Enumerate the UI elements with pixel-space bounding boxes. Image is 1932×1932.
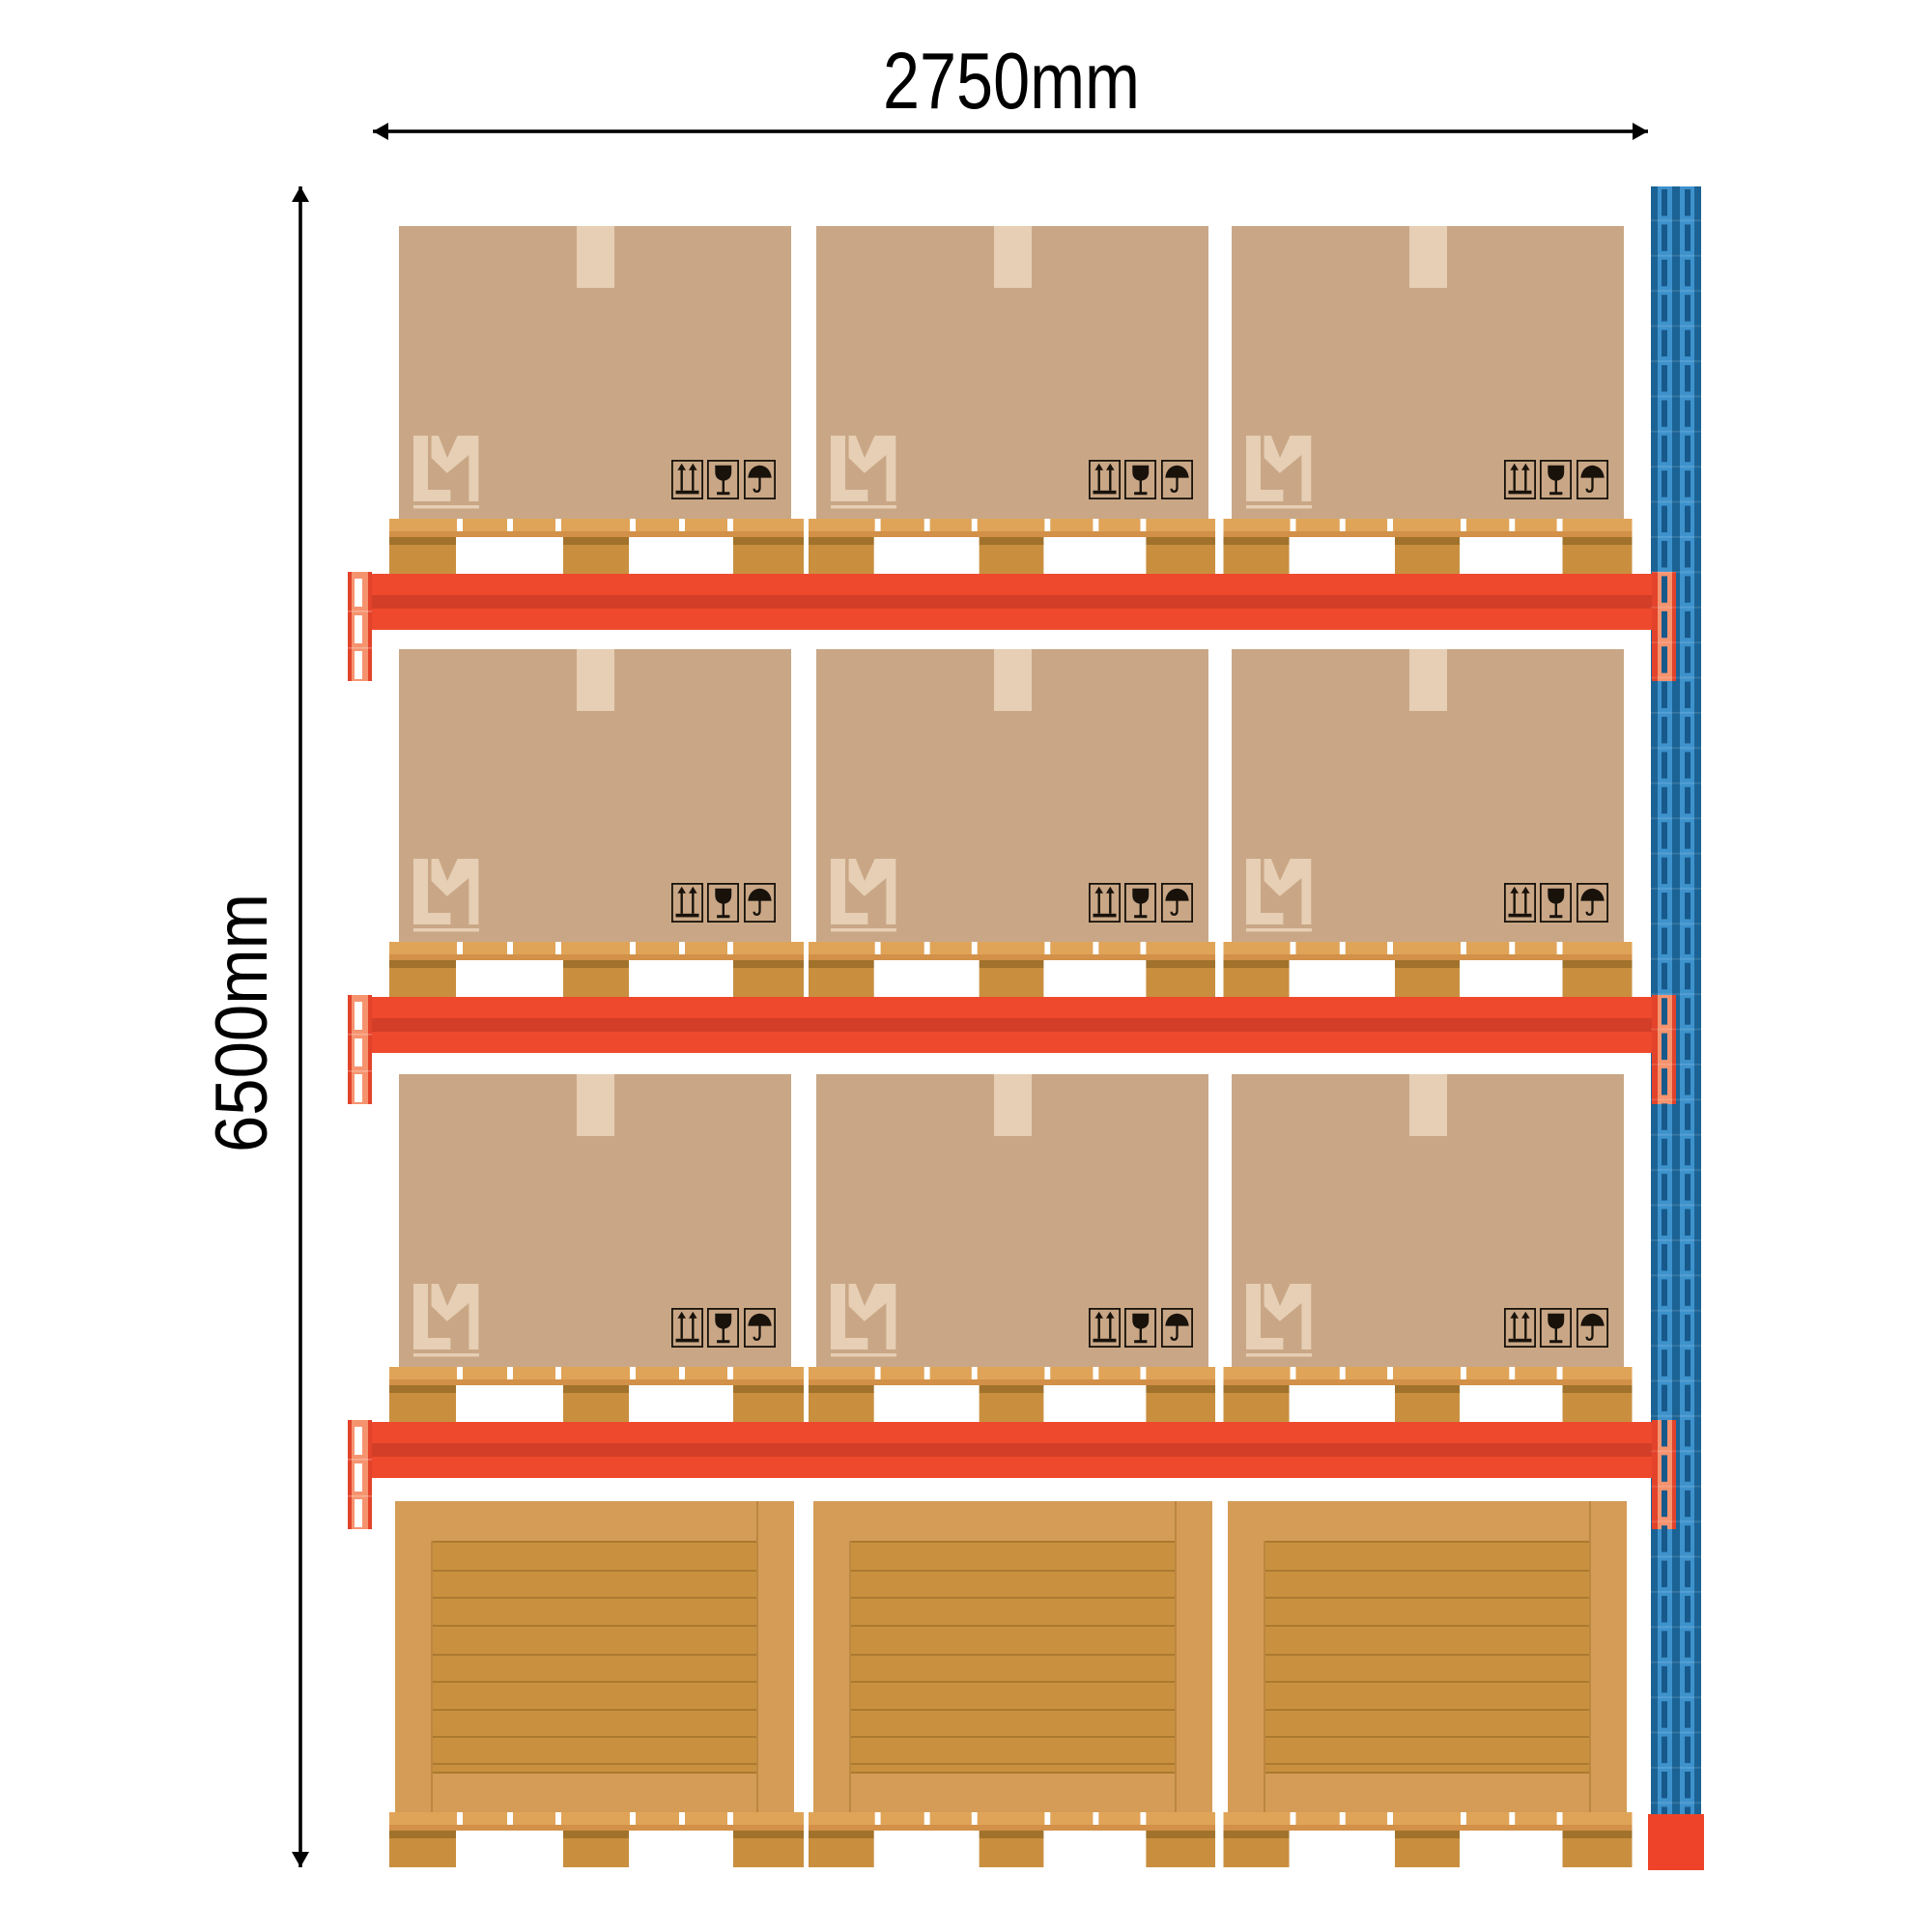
svg-text:2750mm: 2750mm: [883, 36, 1140, 126]
svg-text:6500mm: 6500mm: [201, 894, 283, 1152]
